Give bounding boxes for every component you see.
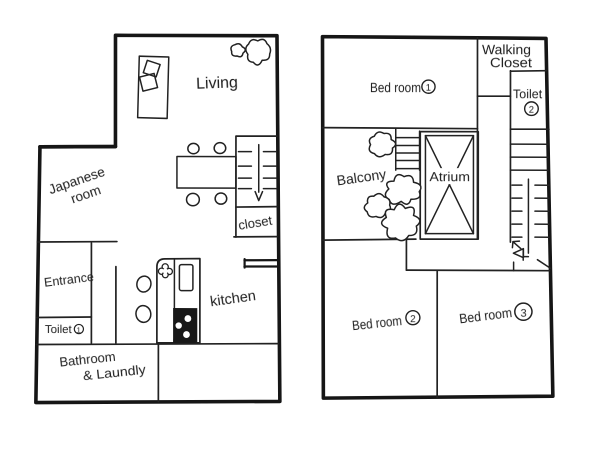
svg-text:Toilet: Toilet	[513, 87, 543, 101]
svg-text:kitchen: kitchen	[209, 288, 257, 310]
svg-text:Bed room: Bed room	[458, 305, 512, 326]
svg-text:Bed room: Bed room	[370, 80, 421, 95]
svg-text:2: 2	[529, 105, 534, 116]
svg-text:closet: closet	[237, 213, 273, 233]
svg-text:2: 2	[410, 314, 416, 325]
svg-text:Living: Living	[196, 74, 238, 92]
svg-text:1: 1	[426, 83, 431, 94]
svg-text:Balcony: Balcony	[336, 166, 388, 189]
svg-text:3: 3	[520, 308, 526, 320]
svg-text:1: 1	[76, 325, 80, 334]
svg-text:Entrance: Entrance	[43, 270, 94, 290]
svg-text:Atrium: Atrium	[429, 169, 470, 184]
svg-text:Closet: Closet	[490, 55, 532, 70]
svg-text:Toilet: Toilet	[45, 324, 73, 336]
svg-text:Bed room: Bed room	[351, 313, 402, 333]
